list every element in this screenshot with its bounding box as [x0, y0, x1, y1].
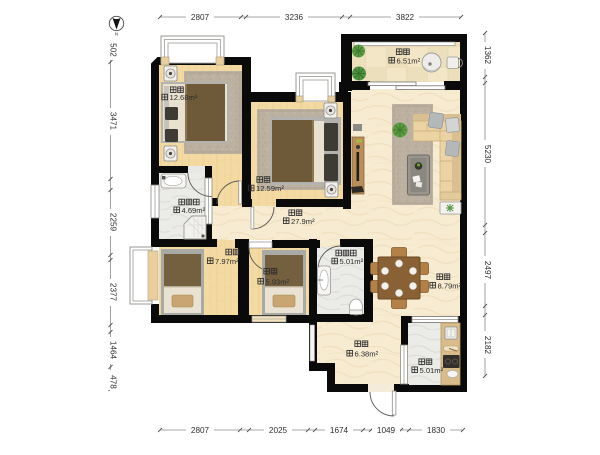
svg-text:1362: 1362 — [483, 46, 492, 65]
svg-text:2497: 2497 — [483, 261, 492, 280]
svg-text:1674: 1674 — [330, 426, 349, 435]
svg-text:4.69m²: 4.69m² — [182, 206, 206, 215]
svg-text:N: N — [115, 32, 118, 37]
svg-text:12.59m²: 12.59m² — [256, 184, 284, 193]
svg-text:502: 502 — [109, 43, 118, 57]
svg-text:12.68m²: 12.68m² — [170, 93, 198, 102]
svg-text:2807: 2807 — [191, 13, 210, 22]
svg-text:478: 478 — [109, 375, 118, 389]
svg-text:5.01m²: 5.01m² — [340, 257, 364, 266]
svg-text:2807: 2807 — [191, 426, 210, 435]
svg-text:1830: 1830 — [427, 426, 446, 435]
svg-text:1049: 1049 — [377, 426, 396, 435]
svg-text:2182: 2182 — [483, 336, 492, 355]
svg-text:8.79m²: 8.79m² — [438, 281, 462, 290]
svg-text:3471: 3471 — [109, 112, 118, 131]
svg-text:6.38m²: 6.38m² — [355, 349, 379, 358]
svg-text:3236: 3236 — [285, 13, 304, 22]
svg-text:5.01m²: 5.01m² — [420, 366, 444, 375]
svg-text:1464: 1464 — [109, 341, 118, 360]
svg-text:2377: 2377 — [109, 283, 118, 302]
svg-text:2259: 2259 — [109, 213, 118, 232]
svg-text:3822: 3822 — [396, 13, 415, 22]
svg-text:5230: 5230 — [483, 145, 492, 164]
svg-text:5.93m²: 5.93m² — [266, 277, 290, 286]
svg-text:27.9m²: 27.9m² — [291, 217, 315, 226]
svg-text:6.51m²: 6.51m² — [397, 56, 421, 65]
svg-text:2025: 2025 — [269, 426, 288, 435]
svg-text:7.97m²: 7.97m² — [215, 257, 239, 266]
